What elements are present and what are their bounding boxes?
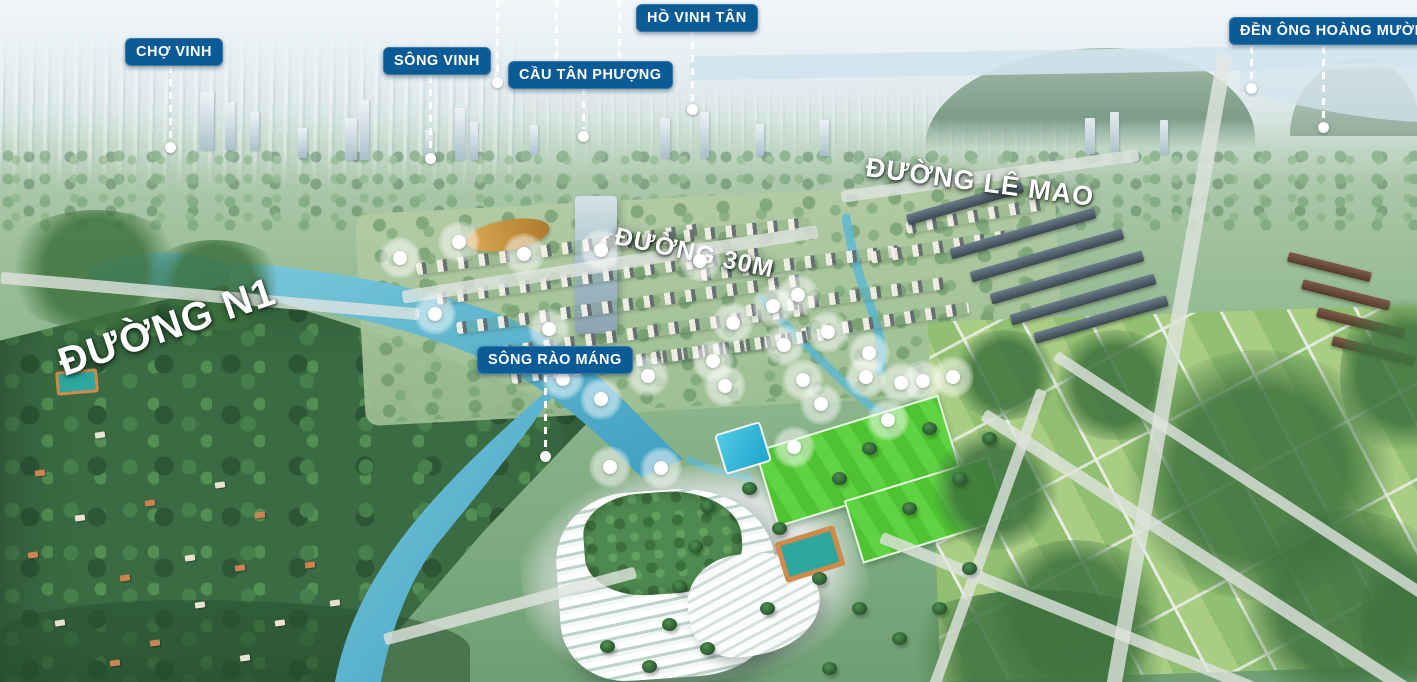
map-marker[interactable] <box>777 274 819 316</box>
map-marker[interactable] <box>580 378 622 420</box>
map-marker[interactable] <box>589 446 631 488</box>
map-marker[interactable] <box>528 308 570 350</box>
distant-tower <box>470 122 478 160</box>
map-marker[interactable] <box>800 383 842 425</box>
leader-dot <box>687 104 698 115</box>
palm-tree <box>832 472 847 485</box>
callout-song-rao-mang[interactable]: SÔNG RÀO MÁNG <box>477 346 633 374</box>
leader-line <box>429 76 432 151</box>
leader-dot <box>540 451 551 462</box>
map-marker[interactable] <box>704 365 746 407</box>
palm-tree <box>812 572 827 585</box>
map-marker[interactable] <box>932 356 974 398</box>
leader-line <box>582 88 585 129</box>
distant-tower <box>1110 112 1119 154</box>
map-marker[interactable] <box>580 229 622 271</box>
callout-song-vinh[interactable]: SÔNG VINH <box>383 47 491 75</box>
leader-dot <box>425 153 436 164</box>
distant-tower <box>820 120 829 156</box>
palm-tree <box>662 618 677 631</box>
palm-tree <box>902 502 917 515</box>
distant-tower <box>250 112 259 150</box>
palm-tree <box>962 562 977 575</box>
palm-tree <box>852 602 867 615</box>
leader-line <box>496 0 499 75</box>
palm-tree <box>892 632 907 645</box>
palm-tree <box>822 662 837 675</box>
map-marker[interactable] <box>640 447 682 489</box>
palm-tree <box>642 660 657 673</box>
masterplan-canvas: CHỢ VINHSÔNG VINHCẦU TÂN PHƯỢNGHỒ VINH T… <box>0 0 1417 682</box>
leader-dot <box>1246 83 1257 94</box>
palm-tree <box>742 482 757 495</box>
callout-den-ong-hoang-muoi[interactable]: ĐỀN ÔNG HOÀNG MƯỜI <box>1229 17 1417 45</box>
palm-tree <box>600 640 615 653</box>
palm-tree <box>772 522 787 535</box>
palm-tree <box>688 540 703 553</box>
distant-tower <box>660 118 670 158</box>
distant-tower <box>360 100 369 160</box>
palm-tree <box>700 642 715 655</box>
distant-tower <box>200 92 214 150</box>
distant-tower <box>298 128 307 158</box>
leader-dot <box>1318 122 1329 133</box>
leader-line <box>555 0 558 60</box>
map-marker[interactable] <box>712 302 754 344</box>
map-marker[interactable] <box>807 311 849 353</box>
distant-tower <box>455 108 465 160</box>
palm-tree <box>982 432 997 445</box>
palm-tree <box>952 472 967 485</box>
distant-tower <box>530 125 538 155</box>
map-marker[interactable] <box>679 240 721 282</box>
leader-line <box>691 29 694 102</box>
distant-tower <box>225 102 235 150</box>
palm-tree <box>922 422 937 435</box>
leader-dot <box>165 142 176 153</box>
callout-cho-vinh[interactable]: CHỢ VINH <box>125 38 223 66</box>
map-marker[interactable] <box>503 233 545 275</box>
leader-line <box>1322 46 1325 120</box>
callout-ho-vinh-tan[interactable]: HỒ VINH TÂN <box>636 4 758 32</box>
map-marker[interactable] <box>773 426 815 468</box>
leader-line <box>618 0 621 57</box>
palm-tree <box>700 500 715 513</box>
map-marker[interactable] <box>867 399 909 441</box>
distant-tower <box>1085 118 1095 154</box>
callout-cau-tan-phuong[interactable]: CẦU TÂN PHƯỢNG <box>508 61 673 89</box>
map-marker[interactable] <box>627 355 669 397</box>
leader-line <box>1250 46 1253 81</box>
map-marker[interactable] <box>414 293 456 335</box>
distant-tower <box>1160 120 1168 154</box>
map-marker[interactable] <box>438 221 480 263</box>
palm-tree <box>760 602 775 615</box>
leader-line <box>169 66 172 140</box>
leader-dot <box>578 131 589 142</box>
distant-tower <box>700 112 709 158</box>
distant-tower <box>756 124 764 156</box>
leader-dot <box>492 77 503 88</box>
palm-tree <box>672 580 687 593</box>
palm-tree <box>862 442 877 455</box>
map-marker[interactable] <box>379 237 421 279</box>
palm-tree <box>932 602 947 615</box>
distant-tower <box>345 118 357 160</box>
